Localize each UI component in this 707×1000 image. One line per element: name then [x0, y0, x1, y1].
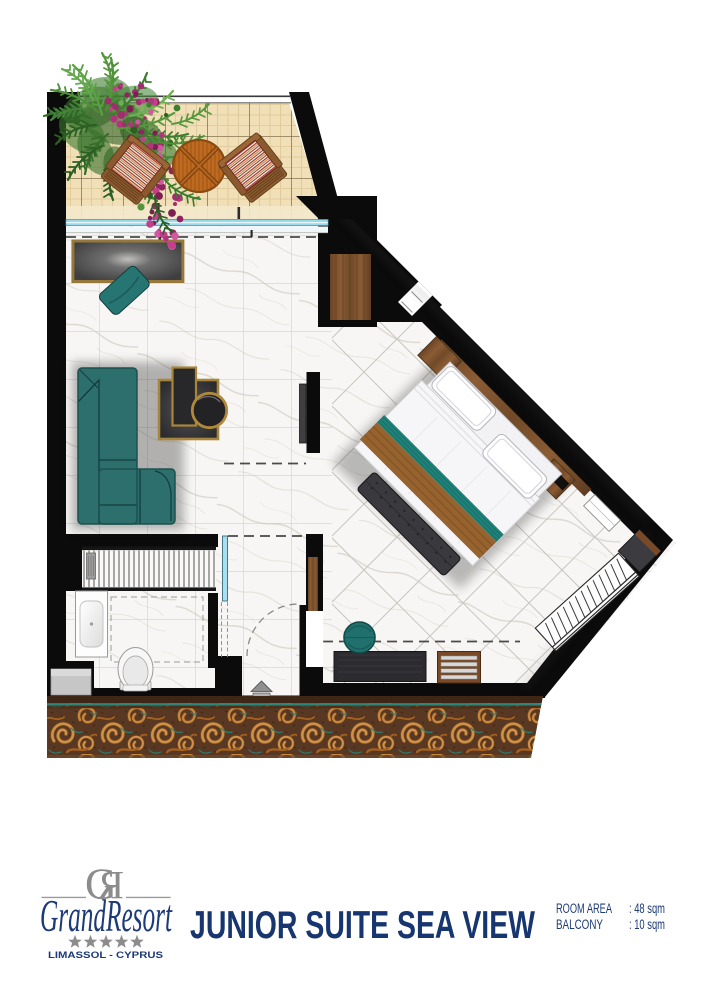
svg-text:: 10 sqm: : 10 sqm	[629, 917, 665, 932]
svg-text:BALCONY: BALCONY	[556, 917, 603, 932]
svg-text:JUNIOR SUITE SEA VIEW: JUNIOR SUITE SEA VIEW	[190, 904, 535, 947]
svg-text:: 48 sqm: : 48 sqm	[629, 901, 665, 916]
svg-text:ROOM AREA: ROOM AREA	[556, 901, 612, 916]
svg-text:GrandResort: GrandResort	[40, 890, 173, 941]
svg-text:LIMASSOL - CYPRUS: LIMASSOL - CYPRUS	[48, 950, 163, 961]
